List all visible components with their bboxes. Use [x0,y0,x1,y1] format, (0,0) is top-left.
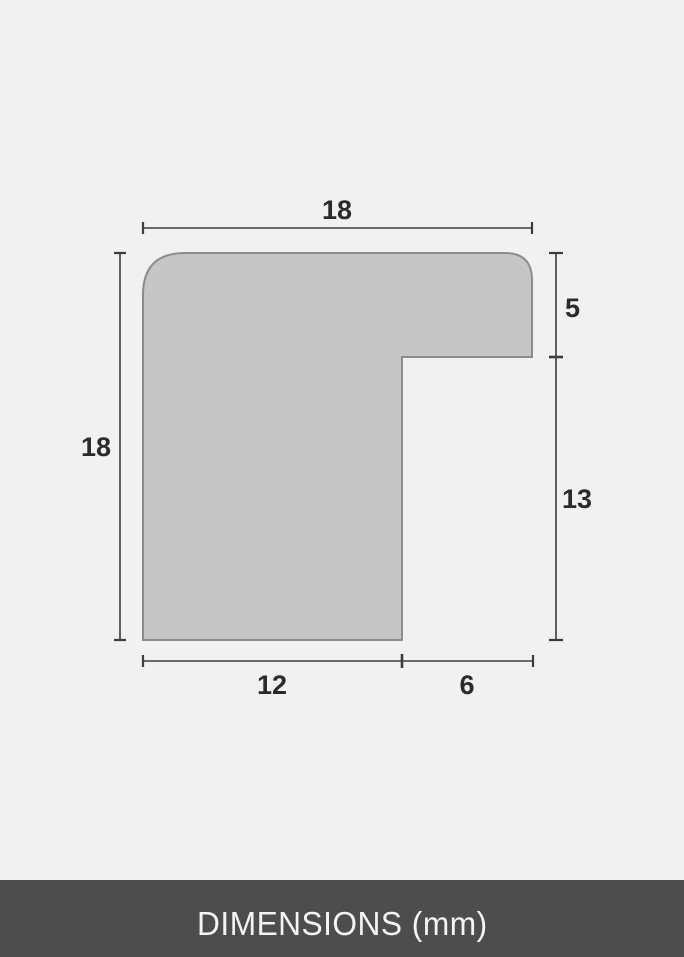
dim-label-right-lower: 13 [562,484,592,514]
footer-bar: DIMENSIONS (mm) [0,880,684,957]
dim-label-bottom-right: 6 [459,670,474,700]
dim-label-top-width: 18 [322,195,352,225]
dim-label-left-height: 18 [81,432,111,462]
dim-label-right-upper: 5 [565,293,580,323]
dim-label-bottom-left: 12 [257,670,287,700]
profile-diagram-canvas: 18 18 5 13 12 6 [0,0,684,880]
frame-profile-dimension-diagram: 18 18 5 13 12 6 DIMENSIONS (mm) [0,0,684,957]
dim-line-right-heights [549,253,563,640]
dim-line-left-height [114,253,126,640]
profile-shape [143,253,532,640]
footer-label: DIMENSIONS (mm) [197,905,488,943]
dim-line-bottom-widths [143,654,533,668]
